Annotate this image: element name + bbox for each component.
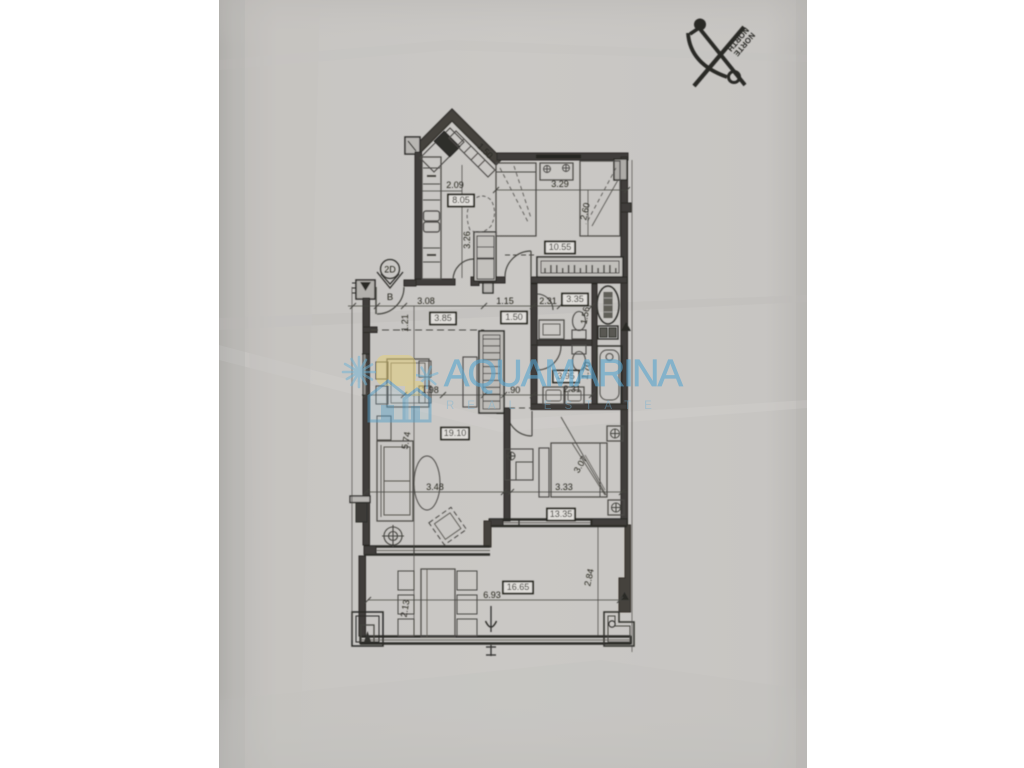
svg-text:3.29: 3.29 (551, 179, 569, 189)
svg-text:B: B (387, 292, 393, 303)
svg-text:2.31: 2.31 (539, 296, 557, 306)
svg-text:REAL ESTATE: REAL ESTATE (446, 400, 665, 412)
svg-text:2D: 2D (384, 265, 396, 275)
svg-text:1.15: 1.15 (496, 296, 514, 306)
svg-text:3.48: 3.48 (426, 482, 444, 492)
svg-text:AQUAMARINA: AQUAMARINA (444, 353, 684, 395)
svg-text:3.26: 3.26 (462, 231, 472, 249)
svg-text:3.33: 3.33 (555, 482, 573, 492)
svg-text:19.10: 19.10 (444, 428, 467, 438)
svg-text:10.55: 10.55 (549, 242, 572, 252)
svg-text:13.35: 13.35 (550, 509, 573, 519)
svg-text:3.08: 3.08 (417, 296, 435, 306)
svg-text:1.21: 1.21 (400, 314, 410, 332)
svg-text:3.85: 3.85 (434, 313, 452, 323)
svg-text:2.09: 2.09 (446, 180, 464, 190)
svg-text:6.93: 6.93 (483, 590, 501, 600)
svg-text:3.35: 3.35 (566, 294, 584, 304)
svg-text:1.50: 1.50 (505, 312, 523, 322)
svg-text:8.05: 8.05 (452, 195, 470, 205)
svg-text:16.65: 16.65 (507, 582, 530, 592)
